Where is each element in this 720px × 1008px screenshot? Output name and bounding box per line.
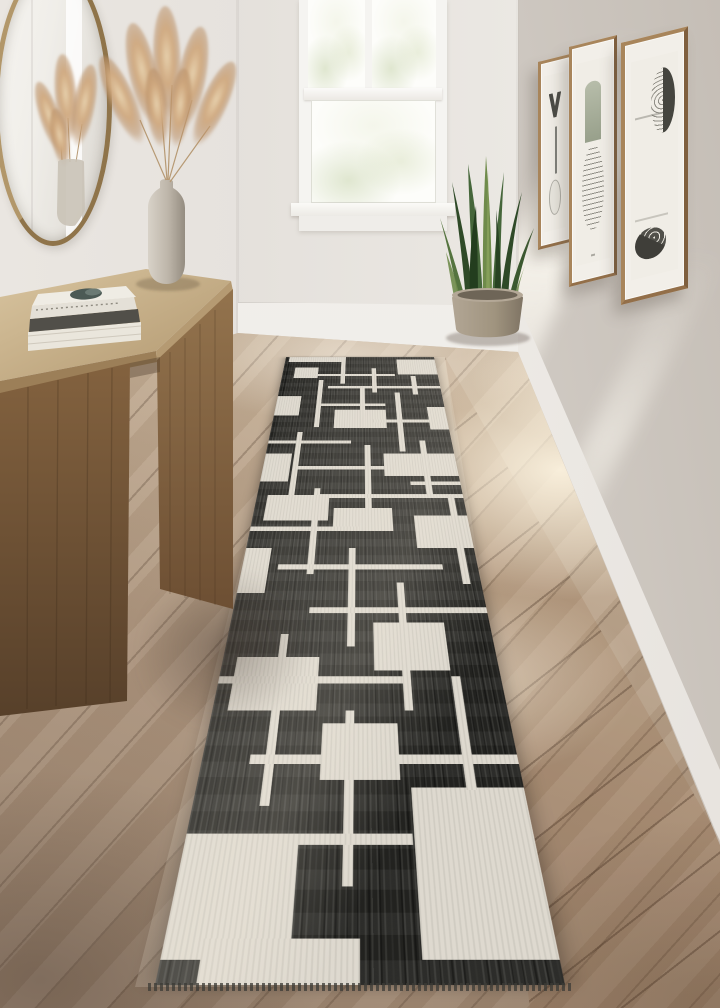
artwork-2-mat bbox=[576, 56, 610, 266]
snake-plant bbox=[440, 156, 534, 346]
artwork-3-leaf-dark bbox=[663, 64, 675, 133]
pampas-vase bbox=[91, 6, 245, 291]
hallway-photo bbox=[0, 0, 720, 1008]
book-stack bbox=[28, 286, 141, 351]
artwork-3-line-2 bbox=[635, 213, 668, 223]
artwork-1-line bbox=[555, 126, 557, 173]
artwork-1-arc bbox=[549, 178, 561, 215]
pampas-plumes bbox=[91, 6, 245, 152]
artwork-3-ripple-disc bbox=[635, 223, 666, 262]
framed-artwork-2 bbox=[569, 35, 617, 287]
artwork-2-stripes bbox=[582, 142, 604, 232]
artwork-1-chevron bbox=[549, 91, 562, 119]
artwork-2-signature bbox=[591, 253, 595, 256]
framed-artwork-1 bbox=[538, 54, 572, 250]
artwork-1-mat bbox=[544, 71, 566, 233]
artwork-3-half-leaf bbox=[651, 64, 676, 136]
artwork-3-leaf-stripes bbox=[651, 67, 663, 136]
mirror-reflection-pampas bbox=[29, 53, 102, 226]
artwork-3-mat bbox=[631, 51, 678, 281]
framed-artwork-3 bbox=[621, 26, 688, 305]
artwork-2-arch bbox=[585, 78, 602, 143]
snake-plant-leaves bbox=[440, 156, 534, 302]
